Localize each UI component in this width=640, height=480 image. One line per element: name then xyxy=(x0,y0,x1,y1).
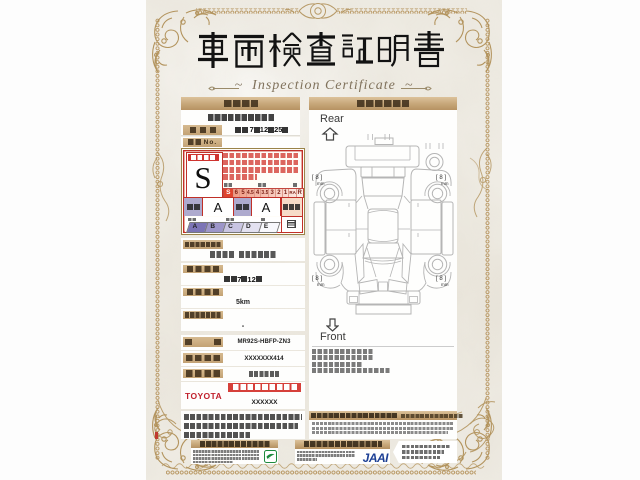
svg-text:mm: mm xyxy=(317,181,325,186)
svg-text:mm: mm xyxy=(441,181,449,186)
svg-text:mm: mm xyxy=(441,282,449,287)
svg-text:mm: mm xyxy=(317,282,325,287)
